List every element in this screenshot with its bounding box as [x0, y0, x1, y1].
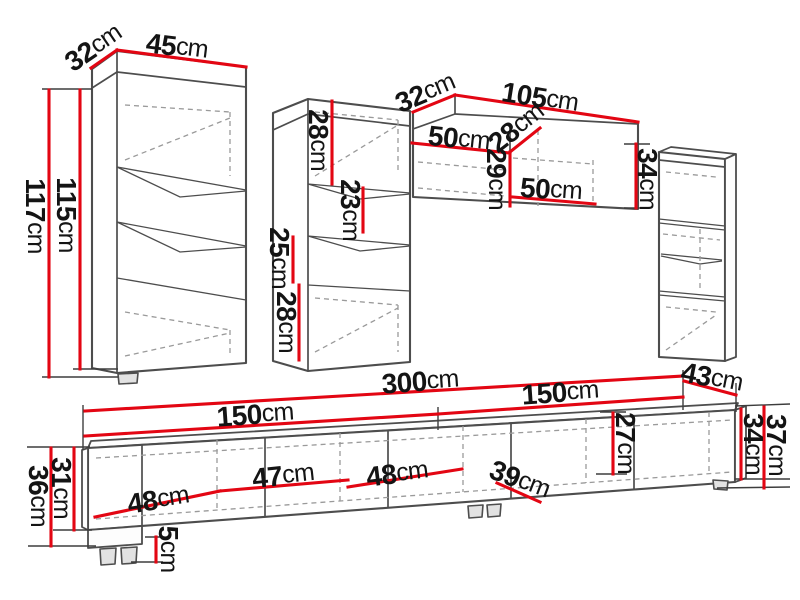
svg-text:37cm: 37cm	[762, 414, 793, 476]
svg-text:43cm: 43cm	[679, 356, 746, 398]
svg-text:25cm: 25cm	[265, 227, 296, 289]
svg-text:300cm: 300cm	[381, 363, 460, 399]
svg-text:115cm: 115cm	[52, 177, 83, 252]
dim-label-tv-stand-right-height-outer: 37cm	[762, 414, 793, 476]
svg-text:28cm: 28cm	[304, 109, 335, 171]
dim-label-tv-stand-depth: 43cm	[679, 356, 746, 398]
dim-label-tv-stand-left-height-inner: 31cm	[47, 457, 78, 519]
dim-label-middle-cabinet-gap-section: 25cm	[265, 227, 296, 289]
svg-text:23cm: 23cm	[336, 179, 367, 241]
tv-stand-foot	[487, 504, 501, 517]
dim-label-tv-stand-inner-height: 27cm	[611, 412, 642, 474]
dim-label-wall-cabinet-inner-width-bottom: 50cm	[519, 171, 583, 206]
left-cabinet-drawing	[92, 51, 246, 384]
svg-text:5cm: 5cm	[154, 526, 185, 573]
dim-label-left-cabinet-height-outer: 117cm	[21, 178, 52, 253]
right-cabinet-drawing	[659, 147, 736, 361]
dim-label-middle-cabinet-bottom-section: 28cm	[272, 291, 303, 353]
tv-stand-foot	[100, 548, 116, 565]
dim-label-left-cabinet-height-inner: 115cm	[52, 177, 83, 252]
dim-label-middle-cabinet-shelf-section: 23cm	[336, 179, 367, 241]
dim-label-tv-stand-total-width: 300cm	[381, 363, 460, 399]
dim-label-wall-cabinet-side-height: 34cm	[633, 148, 664, 210]
svg-text:117cm: 117cm	[21, 178, 52, 253]
svg-text:27cm: 27cm	[611, 412, 642, 474]
svg-text:28cm: 28cm	[272, 291, 303, 353]
svg-text:29cm: 29cm	[482, 148, 513, 210]
dim-label-tv-stand-left-width: 150cm	[216, 396, 295, 432]
svg-text:34cm: 34cm	[633, 148, 664, 210]
diagram-canvas: 32cm45cm117cm115cm28cm23cm25cm28cm32cm10…	[0, 0, 800, 600]
tv-stand-foot	[468, 505, 483, 518]
svg-text:31cm: 31cm	[47, 457, 78, 519]
svg-text:150cm: 150cm	[216, 396, 295, 432]
dim-label-middle-cabinet-top-section: 28cm	[304, 109, 335, 171]
left-cabinet-foot	[118, 373, 138, 384]
dim-label-tv-stand-foot-height: 5cm	[154, 526, 185, 573]
furniture-dimension-diagram: 32cm45cm117cm115cm28cm23cm25cm28cm32cm10…	[0, 0, 800, 600]
svg-text:50cm: 50cm	[519, 171, 583, 206]
dim-label-wall-cabinet-inner-height: 29cm	[482, 148, 513, 210]
